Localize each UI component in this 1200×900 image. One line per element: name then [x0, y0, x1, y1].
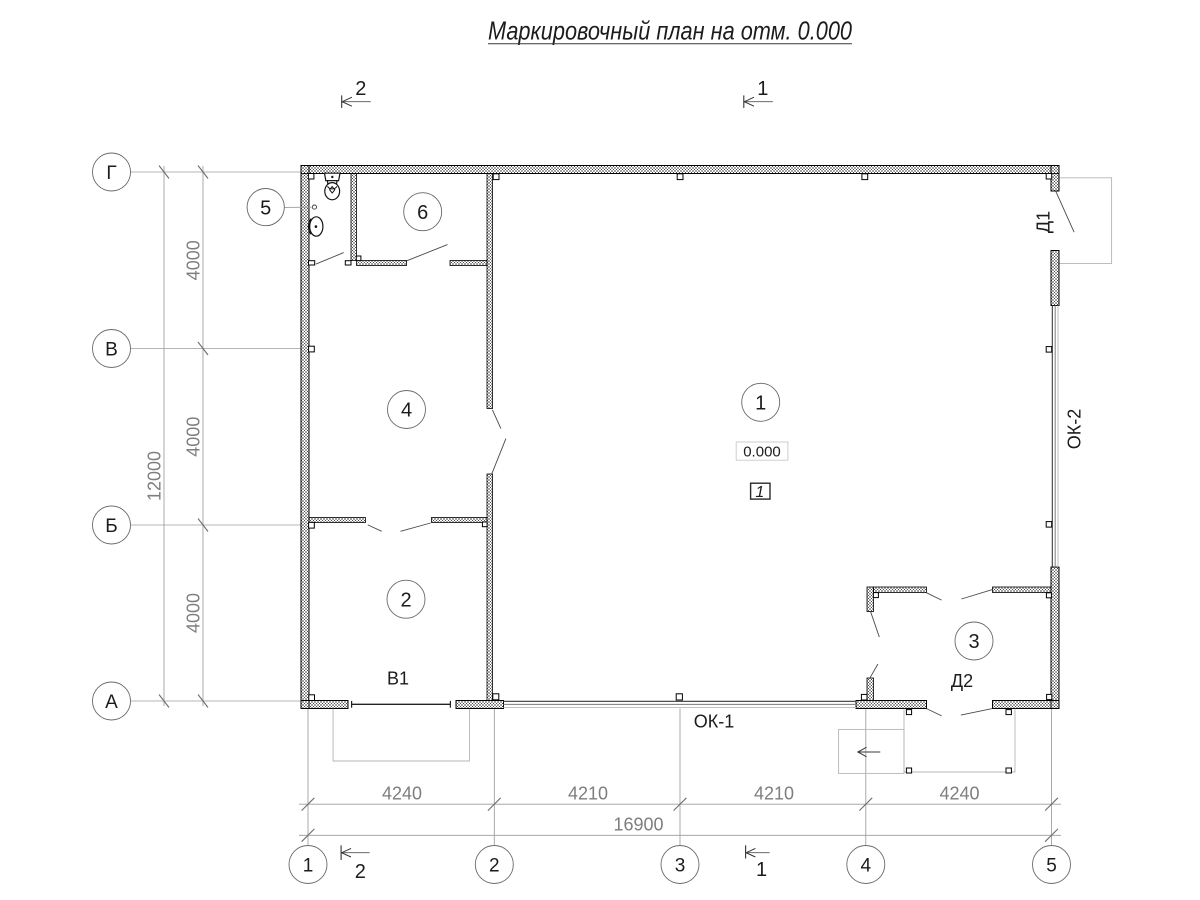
svg-text:4210: 4210 — [568, 784, 608, 804]
svg-text:4000: 4000 — [184, 593, 204, 633]
svg-text:В1: В1 — [387, 669, 409, 689]
svg-text:А: А — [105, 692, 118, 713]
svg-text:6: 6 — [417, 202, 428, 224]
svg-text:4240: 4240 — [382, 784, 422, 804]
svg-text:Б: Б — [105, 516, 117, 537]
svg-text:5: 5 — [1046, 856, 1057, 877]
svg-text:Г: Г — [106, 163, 116, 184]
svg-text:1: 1 — [757, 78, 768, 100]
svg-text:1: 1 — [756, 859, 767, 881]
svg-text:4000: 4000 — [184, 240, 204, 280]
svg-text:4240: 4240 — [939, 784, 979, 804]
svg-text:Д1: Д1 — [1034, 211, 1054, 233]
svg-text:1: 1 — [755, 393, 766, 415]
svg-text:3: 3 — [968, 631, 979, 653]
svg-text:ОК-1: ОК-1 — [694, 711, 735, 731]
svg-text:1: 1 — [755, 484, 764, 501]
svg-text:1: 1 — [303, 856, 314, 877]
svg-text:2: 2 — [355, 861, 366, 883]
svg-text:4210: 4210 — [754, 784, 794, 804]
svg-text:16900: 16900 — [613, 815, 663, 835]
svg-text:4: 4 — [401, 400, 412, 422]
svg-text:5: 5 — [260, 197, 271, 219]
svg-text:Д2: Д2 — [951, 671, 973, 691]
svg-text:4000: 4000 — [184, 417, 204, 457]
svg-text:2: 2 — [355, 78, 366, 100]
svg-text:Маркировочный план на отм. 0.0: Маркировочный план на отм. 0.000 — [488, 16, 852, 46]
svg-text:4: 4 — [861, 856, 872, 877]
svg-text:0.000: 0.000 — [743, 444, 781, 461]
svg-text:12000: 12000 — [145, 451, 165, 501]
svg-text:2: 2 — [489, 856, 500, 877]
svg-text:ОК-2: ОК-2 — [1065, 409, 1085, 450]
svg-text:В: В — [105, 340, 118, 361]
svg-text:2: 2 — [400, 589, 411, 611]
svg-text:3: 3 — [675, 856, 686, 877]
